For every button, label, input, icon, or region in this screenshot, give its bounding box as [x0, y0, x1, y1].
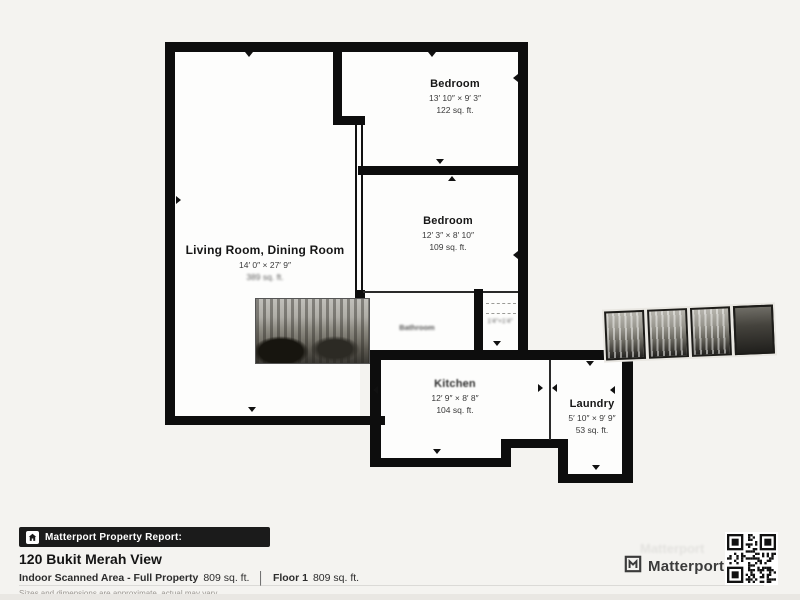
window-living-divider: [355, 125, 363, 292]
photo-cell: [647, 308, 689, 359]
footer-divider: [19, 585, 764, 586]
wall-jog: [333, 116, 365, 125]
property-report-page: 1′4″×1′4″ Bedroom 13′ 10″ × 9′ 3″ 122 sq…: [0, 0, 800, 600]
wall-kitchen-bottom: [370, 458, 510, 467]
floor-label: Floor 1: [273, 572, 308, 584]
qr-code: [725, 532, 778, 585]
room-name: Bedroom: [422, 215, 474, 227]
house-icon: [26, 531, 39, 544]
wall-left: [165, 42, 175, 425]
scanned-area-line: Indoor Scanned Area - Full Property 809 …: [19, 571, 359, 585]
photo-artifact-left: [255, 298, 370, 364]
brand-name: Matterport: [648, 558, 724, 575]
floor-value: 809 sq. ft.: [313, 572, 359, 584]
badge-label: Matterport Property Report:: [45, 532, 182, 543]
matterport-mark-icon: [624, 555, 642, 578]
door-marker-icon: [248, 407, 256, 412]
closet-dash-line: [486, 313, 516, 314]
door-marker-icon: [176, 196, 181, 204]
door-marker-icon: [433, 449, 441, 454]
door-marker-icon: [513, 74, 518, 82]
report-badge: Matterport Property Report:: [19, 527, 270, 547]
wall-kitchen-left: [370, 350, 381, 467]
bathroom-floor: [360, 293, 474, 350]
wall-living-bedroom1: [333, 42, 342, 124]
room-dimensions: 14′ 0″ × 27′ 9″: [186, 260, 345, 270]
wall-kitchen-top: [363, 350, 633, 360]
photo-artifact-strip: [602, 302, 777, 362]
area-label: Indoor Scanned Area - Full Property: [19, 572, 198, 584]
property-address: 120 Bukit Merah View: [19, 551, 162, 567]
matterport-logo: Matterport: [624, 555, 724, 578]
room-area: 122 sq. ft.: [429, 105, 481, 115]
closet-smudge-text: 1′4″×1′4″: [487, 318, 512, 325]
room-label-laundry: Laundry 5′ 10″ × 9′ 9″ 53 sq. ft.: [568, 398, 615, 435]
door-marker-icon: [428, 52, 436, 57]
door-marker-icon: [245, 52, 253, 57]
room-name: Laundry: [568, 398, 615, 410]
room-area: 104 sq. ft.: [431, 405, 478, 415]
room-name: Kitchen: [431, 378, 478, 390]
door-marker-icon: [448, 176, 456, 181]
closet-dash-line: [486, 303, 516, 304]
photo-cell: [690, 306, 732, 357]
room-label-living: Living Room, Dining Room 14′ 0″ × 27′ 9″…: [186, 243, 345, 282]
door-marker-icon: [373, 386, 378, 394]
photo-cell: [604, 310, 646, 361]
room-area: 53 sq. ft.: [568, 425, 615, 435]
room-dimensions: 12′ 3″ × 8′ 10″: [422, 230, 474, 240]
door-marker-icon: [436, 159, 444, 164]
kitchen-floor-lower: [381, 439, 501, 458]
photo-cell: [733, 304, 775, 355]
room-dimensions: 5′ 10″ × 9′ 9″: [568, 413, 615, 423]
room-area: 109 sq. ft.: [422, 242, 474, 252]
door-marker-icon: [592, 465, 600, 470]
room-dimensions: 12′ 9″ × 8′ 8″: [431, 393, 478, 403]
area-value: 809 sq. ft.: [203, 572, 249, 584]
door-marker-icon: [513, 251, 518, 259]
room-label-bathroom: Bathroom: [399, 323, 434, 332]
bottom-edge-strip: [0, 594, 800, 600]
door-marker-icon: [552, 384, 557, 392]
door-marker-icon: [538, 384, 543, 392]
room-label-kitchen: Kitchen 12′ 9″ × 8′ 8″ 104 sq. ft.: [431, 378, 478, 415]
room-name: Living Room, Dining Room: [186, 243, 345, 257]
wall-bedroom2-bottom-thin: [363, 291, 518, 293]
wall-laundry-right: [622, 350, 633, 483]
separator: │: [257, 571, 265, 585]
room-area: 389 sq. ft.: [186, 272, 345, 282]
wall-kitchen-laundry-thin: [549, 360, 551, 440]
door-marker-icon: [586, 361, 594, 366]
wall-between-bedrooms: [358, 166, 518, 175]
room-label-bedroom2: Bedroom 12′ 3″ × 8′ 10″ 109 sq. ft.: [422, 215, 474, 252]
wall-top: [165, 42, 528, 52]
wall-right: [518, 42, 528, 360]
brand-ghost-text: Matterport: [640, 541, 704, 556]
door-marker-icon: [493, 341, 501, 346]
room-label-bedroom1: Bedroom 13′ 10″ × 9′ 3″ 122 sq. ft.: [429, 78, 481, 115]
room-name: Bedroom: [429, 78, 481, 90]
door-marker-icon: [610, 386, 615, 394]
wall-living-bottom: [165, 416, 385, 425]
wall-closet-left: [474, 289, 483, 350]
room-dimensions: 13′ 10″ × 9′ 3″: [429, 93, 481, 103]
